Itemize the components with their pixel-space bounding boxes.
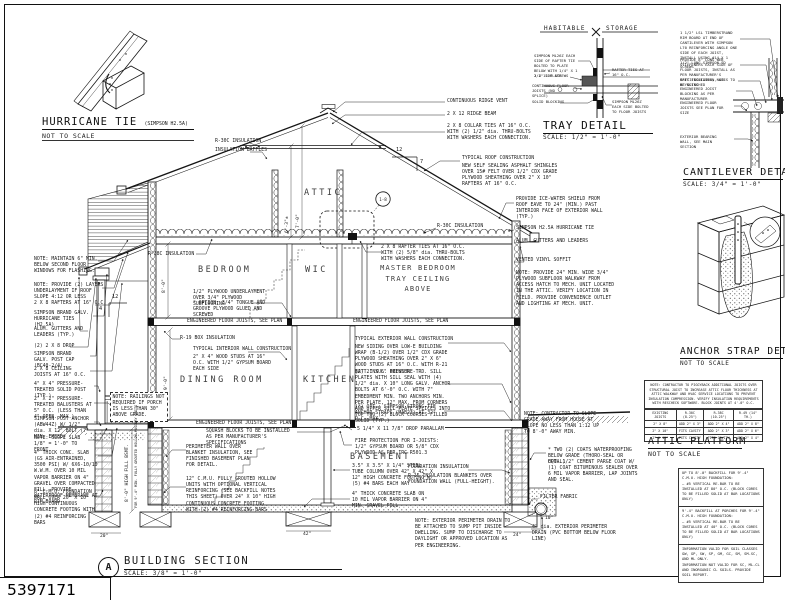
dim-basement-height: 8'-0" HIGH FULL BSMT.	[125, 444, 130, 502]
hurricane-tie-drawing	[74, 31, 147, 111]
cantilever-label-floor-joists: ENGINEERED FLOOR JOISTS SEE PLAN FOR SIZ…	[680, 101, 730, 116]
table-header-row: EXISTING JOISTS R-30C (8.25") R-38C (10.…	[645, 409, 763, 420]
section-marker: A	[98, 557, 119, 578]
cantilever-detail-title: CANTILEVER DETAIL	[683, 167, 783, 180]
label-ridge-vent: CONTINUOUS RIDGE VENT	[447, 99, 508, 105]
dim-attic-collar: 6'-3"±	[285, 216, 290, 233]
room-bedroom: BEDROOM	[198, 265, 251, 275]
label-drop-parallam: 5 1/4" X 11 7/8" DROP PARALLAM	[356, 427, 445, 433]
backfill-s3-b: INFORMATION NOT VALID FOR SC, ML-CL AND …	[682, 563, 760, 578]
building-section-scale: SCALE: 3/8" = 1'-0"	[124, 570, 202, 577]
label-basement-slab: 4" THICK CONCRETE SLAB ON 10 MIL VAPOR B…	[352, 492, 432, 510]
label-r30c-right: R-30C INSULATION	[437, 224, 483, 230]
label-parge-coat: OPT. 1/2" CEMENT PARGE COAT W/ (1) COAT …	[548, 460, 640, 485]
tray-zone-habitable: HABITABLE	[544, 25, 586, 33]
blueprint-sheet: NOTE: MAINTAIN 6" MIN. BELOW SECOND FLOO…	[0, 0, 785, 600]
note-perimeter-drain: NOTE: EXTERIOR PERIMETER DRAIN TO BE ATT…	[415, 519, 515, 550]
table-cell: ADD 2" X 4"	[704, 420, 734, 427]
attic-platform-block: NOTE: CONTRACTOR TO PIGGYBACK ADDITIONAL…	[644, 380, 763, 442]
table-header-cell: EXISTING JOISTS	[645, 409, 677, 420]
table-header-cell: R-49 (14" TH.)	[733, 409, 762, 420]
pitch-run-porch: 12	[112, 294, 118, 300]
hurricane-tie-title-text: HURRICANE TIE	[42, 116, 137, 128]
anchor-strap-scale: NOT TO SCALE	[680, 360, 729, 367]
backfill-section-2: 9'-4" BACKFILL AT PORCHES FOR 9'-4" C.M.…	[679, 507, 763, 545]
label-r30c-left: R-30C INSULATION	[215, 139, 261, 145]
table-cell: 2" X 10"	[645, 427, 677, 434]
tray-label-plate: 2 X 12 PLATE	[534, 74, 561, 79]
room-kitchen: KITCHEN	[303, 375, 356, 385]
sheet-number: 5397171	[0, 577, 111, 600]
table-row: 2" X 10" FITS CAVITY ADD 2" X 3" ADD 2" …	[645, 427, 763, 434]
label-gutters-right: ALUM. GUTTERS AND LEADERS	[516, 239, 588, 245]
table-header-cell: R-38C (10.25")	[704, 409, 734, 420]
label-insulation-baffles: INSULATION BAFFLES	[215, 148, 267, 154]
table-row: 2" X 8" ADD 2" X 3" ADD 2" X 4" ADD 2" X…	[645, 420, 763, 427]
label-porch-drop: (2) 2 X 8 DROP	[34, 344, 74, 350]
label-ice-water-shield: PROVIDE ICE-WATER SHIELD FROM ROOF EAVE …	[516, 197, 612, 222]
label-porch-ceiling-joists: 2 X 8 CEILING JOISTS AT 16" O.C.	[34, 367, 86, 379]
anchor-strap-drawing	[698, 206, 784, 318]
dim-second-floor: 8'-0"	[162, 279, 167, 293]
label-subfloor-option: * OPTION: 3/4" TONGUE AND GROOVE PLYWOOD…	[193, 301, 269, 319]
note-railing: NOTE: RAILINGS NOT REQUIRED IF PORCH IS …	[110, 392, 168, 422]
attic-platform-scale: NOT TO SCALE	[648, 450, 701, 458]
label-roof-construction-title: TYPICAL ROOF CONSTRUCTION	[462, 156, 534, 162]
label-rafter-ties: 2 X 8 RAFTER TIES AT 16" O.C. WITH (2) 5…	[381, 245, 479, 263]
label-vinyl-soffit: VENTED VINYL SOFFIT	[516, 258, 571, 264]
room-master-bedroom: MASTER BEDROOMTRAY CEILING ABOVE	[375, 263, 461, 295]
room-master-line1: MASTER BEDROOM	[380, 264, 456, 272]
table-cell: ADD 2" X 8"	[733, 420, 762, 427]
pitch-rise-main: 7	[420, 159, 423, 165]
label-hurricane-tie-right: SIMPSON H2.5A HURRICANE TIE	[516, 226, 594, 232]
table-cell: 2" X 8"	[645, 420, 677, 427]
label-porch-rafters: 2 X 8 RAFTERS AT 16" O.C.	[34, 301, 106, 307]
backfill-s1-title: UP TO 8'-0" BACKFILL FOR 9'-4" C.M.U. HI…	[682, 471, 760, 481]
dim-column-footing: 42"	[303, 532, 311, 537]
label-interior-wall-title: TYPICAL INTERIOR WALL CONSTRUCTION	[193, 347, 291, 353]
tray-label-simpson-bottom: SIMPSON ML26Z EACH SIDE BOLTED TO FLOOR …	[612, 100, 652, 115]
table-cell: ADD 2" X 6"	[733, 427, 762, 434]
label-exterior-wall-title: TYPICAL EXTERIOR WALL CONSTRUCTION	[355, 337, 453, 343]
table-cell: FITS CAVITY	[676, 427, 704, 434]
tray-label-floor-joists: CONTINUOUS FLOOR JOISTS (NO SPLICE)	[532, 84, 572, 99]
anchor-strap-title: ANCHOR STRAP DETAIL	[680, 346, 783, 359]
label-efj-2f-right: ENGINEERED FLOOR JOISTS, SEE PLAN	[352, 319, 449, 325]
backfill-section-3: INFORMATION VALID FOR SOIL CLASSES GW, G…	[679, 545, 763, 582]
note-underlayment: NOTE: PROVIDE (2) LAYERS UNDERLAYMENT IF…	[34, 283, 108, 301]
tray-zone-storage: STORAGE	[606, 25, 638, 33]
backfill-section-1: UP TO 8'-0" BACKFILL FOR 9'-4" C.M.U. HI…	[679, 469, 763, 507]
dim-basement-cmu: FOR 9'-4" MIN. FULLY GROUTED HOLLOW MASO…	[134, 405, 138, 508]
backfill-s2-body: — #5 VERTICAL RE-BAR TO BE INSTALLED AT …	[682, 520, 760, 540]
backfill-notes-box: UP TO 8'-0" BACKFILL FOR 9'-4" C.M.U. HI…	[678, 468, 764, 583]
label-collar-ties: 2 X 8 COLLAR TIES AT 16" O.C. WITH (2) 1…	[447, 124, 544, 142]
dim-attic-ridge: 7'-0"	[296, 214, 301, 228]
room-wic: WIC	[305, 265, 328, 275]
dim-porch-footing: 20"	[100, 534, 108, 539]
label-cmu12-foundation: 12" C.M.U. FULLY GROUTED HOLLOW UNITS WI…	[186, 477, 278, 514]
label-perimeter-drain: 4" dia. EXTERIOR PERIMETER DRAIN (PVC BO…	[532, 525, 620, 543]
tray-detail-scale: SCALE: 1/2" = 1'-0"	[543, 134, 621, 141]
tray-detail-title: TRAY DETAIL	[543, 119, 653, 134]
table-cell: ADD 2" X 3"	[704, 427, 734, 434]
label-interior-wall-spec: 2" X 4" WOOD STUDS AT 16" O.C. WITH 1/2"…	[193, 355, 278, 373]
label-roof-construction-spec: NEW SELF SEALING ASPHALT SHINGLES OVER 1…	[462, 164, 562, 189]
tray-label-rafter-ties: RAFTER TIES AT 16" O.C.	[612, 68, 648, 78]
label-r38c: R-38C INSULATION	[148, 252, 194, 258]
pitch-rise-porch: 4	[99, 306, 102, 312]
backfill-s1-body: — #5 VERTICAL RE-BAR TO BE INSTALLED AT …	[682, 482, 760, 502]
dim-first-floor: 9'-0"	[164, 376, 169, 390]
cantilever-detail-drawing	[733, 39, 784, 168]
detail-reference-bubble: 1-8	[377, 197, 389, 202]
tray-label-blocking: SOLID BLOCKING	[532, 100, 564, 105]
dim-right-footing-width: 24"	[513, 533, 521, 538]
label-porch-gutters: ALUM. GUTTERS AND LEADERS (TYP.)	[34, 327, 86, 339]
label-efj-2f-left: ENGINEERED FLOOR JOISTS, SEE PLAN	[186, 319, 283, 325]
table-header-cell: R-30C (8.25")	[676, 409, 704, 420]
attic-platform-note: NOTE: CONTRACTOR TO PIGGYBACK ADDITIONAL…	[644, 380, 763, 409]
room-attic: ATTIC	[304, 188, 342, 198]
cantilever-detail-scale: SCALE: 3/4" = 1'-0"	[683, 181, 761, 188]
hurricane-tie-title: HURRICANE TIE (SIMPSON H2.5A)	[42, 116, 194, 130]
label-perimeter-wall: PERIMETER WALL OVER BLANKET INSULATION, …	[186, 445, 258, 470]
room-dining: DINING ROOM	[180, 375, 264, 385]
label-cmu8-foundation: 8" C.M.U. FOUNDATION WALL OVER 20" X 10"…	[34, 490, 98, 527]
attic-platform-title: ATTIC PLATFORM	[648, 436, 742, 449]
note-flashing: NOTE: MAINTAIN 6" MIN. BELOW SECOND FLOO…	[34, 257, 104, 275]
label-efj-1f-left: ENGINEERED FLOOR JOISTS, SEE PLAN	[195, 421, 292, 427]
pitch-run-main: 12	[396, 147, 402, 153]
label-steel-column: 3.5" X 3.5" X 1/4" STEEL TUBE COLUMN OVE…	[352, 464, 434, 489]
room-master-line2: TRAY CEILING ABOVE	[386, 275, 451, 294]
note-grade-slope: NOTE: CONTRACTOR TO SLOPE GRADE AWAY FRO…	[524, 412, 604, 437]
backfill-s2-title: 9'-4" BACKFILL AT PORCHES FOR 9'-4" C.M.…	[682, 509, 760, 519]
cantilever-label-bearing-wall: EXTERIOR BEARING WALL, SEE MAIN SECTION	[680, 135, 730, 150]
room-basement: BASEMENT	[350, 452, 411, 462]
backfill-s3-a: INFORMATION VALID FOR SOIL CLASSES GW, G…	[682, 547, 760, 562]
dim-right-footing-height: 10"	[545, 516, 553, 521]
hurricane-tie-subtitle: (SIMPSON H2.5A)	[145, 122, 188, 127]
building-section-title: BUILDING SECTION	[124, 555, 342, 570]
label-r19-box: R-19 BOX INSULATION	[180, 336, 235, 342]
label-ridge-beam: 2 X 12 RIDGE BEAM	[447, 112, 496, 118]
note-attic-walkway: NOTE: PROVIDE 24" MIN. WIDE 3/4" PLYWOOD…	[516, 271, 616, 308]
label-anchor-strap-option: (*) OPT.: SIMPSON STRONG-TIE ANCHOR STRA…	[355, 405, 447, 423]
label-filter-fabric: FILTER FABRIC	[540, 495, 578, 501]
table-cell: ADD 2" X 3"	[676, 420, 704, 427]
hurricane-tie-scale: NOT TO SCALE	[42, 132, 194, 141]
